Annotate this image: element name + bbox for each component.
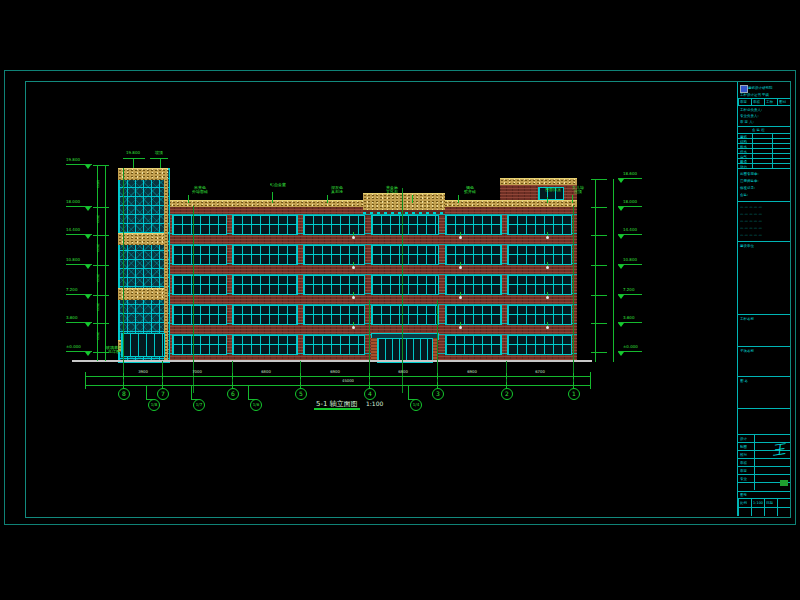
- right-chain-tick: [591, 295, 607, 296]
- titleblock-text: 电气: [740, 154, 747, 158]
- ac-unit-flag: [547, 292, 548, 296]
- axis-bubble: 2: [501, 388, 513, 400]
- window-r0-g4: [445, 215, 502, 235]
- ac-unit-dot: [546, 266, 549, 269]
- dim-tick: [232, 373, 233, 379]
- tower-flag-drop-2: [160, 158, 161, 168]
- titleblock-text: 图号: [740, 492, 747, 496]
- tower-flag-text-2: 坡顶: [149, 151, 168, 155]
- level-line: [618, 234, 642, 235]
- ac-unit-dot: [459, 266, 462, 269]
- floor-dim-text: 3600: [97, 244, 101, 252]
- level-triangle: [618, 179, 624, 183]
- axis-bubble: 6: [227, 388, 239, 400]
- roof-callout-label: 女儿墙 压顶: [562, 186, 594, 194]
- titleblock-text: 专业: [740, 476, 747, 480]
- left-chain-tick: [93, 207, 109, 208]
- tower-band-2: [118, 288, 168, 300]
- titleblock-text: 工程设计证书 甲级: [740, 92, 769, 96]
- level-triangle: [618, 323, 624, 327]
- ac-unit-dot: [352, 296, 355, 299]
- level-triangle: [85, 235, 91, 239]
- window-r0-g1: [232, 215, 298, 235]
- right-chain-tick: [591, 352, 607, 353]
- window-r3-g1: [232, 305, 298, 325]
- titleblock-text: 排水: [740, 149, 747, 153]
- titleblock-text: — — — — —: [740, 218, 762, 222]
- window-r0-g5: [507, 215, 572, 235]
- titleblock-text: 工程总负责人:: [740, 107, 762, 111]
- dim-segment-text: 6800: [259, 370, 274, 374]
- titleblock-divider: [738, 168, 790, 169]
- axis-bubble: 7: [157, 388, 169, 400]
- window-r1-g0: [172, 245, 227, 265]
- ac-unit-dot: [459, 236, 462, 239]
- ground-line: [72, 360, 592, 362]
- window-r2-g5: [507, 275, 572, 295]
- dim-segment-text: 6900: [327, 370, 342, 374]
- floor-dim-text: 3600: [97, 332, 101, 340]
- level-text: 7.200: [623, 288, 634, 292]
- window-r3-g5: [507, 305, 572, 325]
- titleblock-text: 图 名: [740, 378, 748, 382]
- ac-unit-flag: [460, 322, 461, 326]
- elevation-drawing: 8765432139007000680069006800690067004500…: [0, 0, 800, 600]
- header-cell-line: [764, 98, 765, 105]
- axis-bubble: 3: [432, 388, 444, 400]
- sub-axis-bubble: 1/7: [193, 399, 205, 411]
- window-r0-g0: [172, 215, 227, 235]
- floor-dim-text: 3600: [97, 303, 101, 311]
- level-line: [618, 206, 642, 207]
- level-text: 14.400: [623, 228, 637, 232]
- roof-callout-label: 深灰色 真石漆: [321, 186, 353, 194]
- left-chain-tick: [93, 265, 109, 266]
- ac-unit-flag: [547, 232, 548, 236]
- right-chain-tick: [591, 179, 607, 180]
- dim-end-r: [590, 372, 591, 389]
- ac-unit-flag: [353, 262, 354, 266]
- dim-line-1: [85, 376, 590, 377]
- titleblock-text: 暖通: [740, 159, 747, 163]
- window-r4-g1: [232, 335, 298, 355]
- titleblock-text: 设计: [740, 436, 747, 440]
- level-text: 3.600: [623, 316, 634, 320]
- ac-unit-flag: [460, 262, 461, 266]
- dim-tick: [300, 373, 301, 379]
- dim-segment-text: 3900: [135, 370, 150, 374]
- drawing-scale-text: 1:100: [366, 400, 383, 407]
- window-r2-g1: [232, 275, 298, 295]
- titleblock-text: 王: [772, 446, 786, 454]
- dim-segment-text: 6700: [532, 370, 547, 374]
- dim-segment-text: 6800: [396, 370, 411, 374]
- level-text: 7.200: [66, 288, 77, 292]
- level-triangle: [85, 265, 91, 269]
- titleblock-text: 比例: [740, 500, 747, 504]
- window-r1-g1: [232, 245, 298, 265]
- tower-flag-drop-1: [133, 158, 134, 168]
- sub-axis-leader-v: [191, 386, 192, 400]
- level-text: ±0.000: [623, 345, 638, 349]
- window-r2-g3: [371, 275, 439, 295]
- dim-tick: [369, 373, 370, 379]
- window-r3-g3: [371, 305, 439, 325]
- level-text: 18.600: [623, 172, 637, 176]
- ac-unit-flag: [353, 292, 354, 296]
- sub-axis-leader-v: [146, 386, 147, 400]
- titleblock-text: — — — — —: [740, 204, 762, 208]
- window-r3-g4: [445, 305, 502, 325]
- roof-callout-leader: [188, 195, 189, 203]
- ac-unit-flag: [353, 322, 354, 326]
- grid-centerline: [123, 168, 124, 393]
- titleblock-text: 专业负责人:: [740, 113, 759, 117]
- roof-callout-leader: [547, 197, 548, 203]
- level-text: ±0.000: [66, 345, 81, 349]
- dim-total-text: 45000: [341, 379, 356, 383]
- window-r1-g4: [445, 245, 502, 265]
- left-chain-tick: [93, 165, 109, 166]
- dim-tick: [437, 373, 438, 379]
- level-line: [618, 351, 642, 352]
- dim-end-l: [85, 372, 86, 389]
- grid-centerline: [193, 206, 194, 393]
- header-cell-line: [777, 98, 778, 105]
- drawing-title-text: 5-1 轴立面图: [316, 400, 358, 408]
- titleblock-divider: [738, 376, 790, 377]
- left-chain-tick: [93, 295, 109, 296]
- sub-axis-bubble: 1/6: [250, 399, 262, 411]
- window-r4-g5: [507, 335, 572, 355]
- titleblock-divider: [738, 105, 790, 106]
- window-r2-g4: [445, 275, 502, 295]
- ac-unit-flag: [353, 232, 354, 236]
- roof-callout-leader: [458, 195, 459, 203]
- titleblock-text: 出图专用章:: [740, 171, 759, 175]
- window-r4-g2: [303, 335, 365, 355]
- sign-table-col: [772, 133, 773, 168]
- titleblock-text: 审定: [740, 468, 747, 472]
- titleblock-divider: [738, 434, 790, 435]
- level-triangle: [618, 207, 624, 211]
- level-line: [618, 264, 642, 265]
- titleblock-text: 给水: [740, 144, 747, 148]
- window-r2-g0: [172, 275, 227, 295]
- dim-segment-text: 7000: [190, 370, 205, 374]
- floor-dim-text: 1800: [97, 180, 101, 188]
- tower-band-1: [118, 233, 168, 245]
- titleblock-divider: [738, 314, 790, 315]
- ac-unit-dot: [546, 326, 549, 329]
- sub-axis-leader-v: [248, 386, 249, 400]
- axis-bubble: 1: [568, 388, 580, 400]
- roof-callout-label: 褐色 劈开砖: [454, 186, 486, 194]
- roof-callout-leader: [327, 195, 328, 203]
- titleblock-text: — — — — —: [740, 232, 762, 236]
- window-r0-g3: [371, 215, 439, 235]
- titleblock-text: 建筑设计研究院: [748, 85, 773, 89]
- approval-stamp: [780, 480, 788, 486]
- ac-unit-dot: [459, 296, 462, 299]
- grid-centerline: [573, 206, 574, 393]
- ac-unit-flag: [460, 292, 461, 296]
- sign-table-col: [752, 133, 753, 168]
- person-col: [754, 434, 755, 490]
- titleblock-divider: [738, 466, 790, 467]
- dim-tick: [573, 373, 574, 379]
- axis-bubble: 4: [364, 388, 376, 400]
- titleblock-text: 会 签 栏: [752, 127, 765, 131]
- titleblock-text: 审 定 人:: [740, 119, 754, 123]
- level-text: 3.600: [66, 316, 77, 320]
- level-triangle: [618, 235, 624, 239]
- floor-dim-text: 3600: [97, 215, 101, 223]
- window-r2-g2: [303, 275, 365, 295]
- sub-axis-leader-v: [408, 386, 409, 400]
- level-triangle: [618, 265, 624, 269]
- titleblock-divider: [738, 201, 790, 202]
- tower-flag-text-1: 19.800: [123, 151, 144, 155]
- titleblock-text: 审定: [740, 99, 747, 103]
- titleblock-divider: [738, 408, 790, 409]
- window-r1-g2: [303, 245, 365, 265]
- window-r3-g2: [303, 305, 365, 325]
- level-text: 10.800: [66, 258, 80, 262]
- floor-dim-text: 3600: [97, 274, 101, 282]
- tower-band-0: [118, 168, 168, 180]
- titleblock-divider: [738, 346, 790, 347]
- titleblock-text: 结构: [740, 139, 747, 143]
- titleblock-text: 子项名称: [740, 348, 754, 352]
- titleblock-text: 修改记录:: [740, 185, 755, 189]
- right-chain-b: [613, 179, 614, 362]
- ac-unit-dot: [459, 326, 462, 329]
- titleblock-divider: [738, 241, 790, 242]
- roof-callout-leader: [272, 192, 273, 203]
- window-r0-g2: [303, 215, 365, 235]
- titleblock-text: 审核: [753, 99, 760, 103]
- level-triangle: [618, 352, 624, 356]
- header-cell-line: [738, 98, 739, 105]
- window-r1-g3: [371, 245, 439, 265]
- window-r1-g5: [507, 245, 572, 265]
- titleblock-text: 建筑: [740, 134, 747, 138]
- ac-unit-dot: [546, 236, 549, 239]
- ac-unit-dot: [352, 326, 355, 329]
- right-chain-tick: [591, 265, 607, 266]
- titleblock-text: 1:100: [753, 500, 763, 504]
- ac-unit-flag: [547, 322, 548, 326]
- window-r4-g0: [172, 335, 227, 355]
- axis-bubble: 8: [118, 388, 130, 400]
- left-chain-b: [105, 165, 106, 361]
- ac-unit-dot: [546, 296, 549, 299]
- ac-unit-flag: [547, 262, 548, 266]
- titleblock-text: 图别: [779, 99, 786, 103]
- titleblock-text: 会签:: [740, 192, 748, 196]
- ac-unit-dot: [352, 236, 355, 239]
- level-triangle: [85, 295, 91, 299]
- level-text: 10.800: [623, 258, 637, 262]
- right-chain-tick: [591, 207, 607, 208]
- header-cell-line: [751, 98, 752, 105]
- level-line: [618, 178, 642, 179]
- left-chain-tick: [93, 235, 109, 236]
- title-block: 建筑设计研究院工程设计证书 甲级审定审核工种图别工程总负责人:专业负责人:审 定…: [737, 82, 790, 516]
- titleblock-text: 制图: [740, 444, 747, 448]
- level-text: 14.400: [66, 228, 80, 232]
- titleblock-text: 日期: [766, 500, 773, 504]
- tower-flag-line-1: [123, 158, 145, 159]
- level-triangle: [85, 352, 91, 356]
- dim-line-2: [85, 385, 590, 386]
- left-chain-tick: [93, 323, 109, 324]
- ac-unit-dot: [352, 266, 355, 269]
- right-chain-tick: [591, 235, 607, 236]
- center-parapet: [363, 193, 445, 211]
- level-triangle: [618, 295, 624, 299]
- titleblock-text: 建设单位: [740, 243, 754, 247]
- axis-bubble: 5: [295, 388, 307, 400]
- titleblock-text: 审核: [740, 460, 747, 464]
- level-triangle: [85, 165, 91, 169]
- level-text: 18.000: [66, 200, 80, 204]
- level-line: [618, 322, 642, 323]
- titleblock-text: 校对: [740, 452, 747, 456]
- level-text: 18.000: [623, 200, 637, 204]
- level-triangle: [85, 323, 91, 327]
- sub-axis-bubble: 1/8: [148, 399, 160, 411]
- roof-callout-leader: [572, 195, 573, 203]
- tower-flag-line-2: [150, 158, 168, 159]
- dim-tick: [162, 373, 163, 379]
- dim-segment-text: 6900: [464, 370, 479, 374]
- titleblock-text: — — — — —: [740, 225, 762, 229]
- titleblock-text: 工程名称: [740, 316, 754, 320]
- titleblock-divider: [738, 474, 790, 475]
- titleblock-divider: [738, 458, 790, 459]
- roof-callout-leader: [412, 195, 413, 203]
- roof-callout-label: 黄金麻 文化石: [376, 186, 408, 194]
- ac-unit-flag: [460, 232, 461, 236]
- level-line: [618, 294, 642, 295]
- titleblock-text: 注册师签章:: [740, 178, 759, 182]
- curtain-wall-label: 玻璃幕墙 见详图: [100, 346, 129, 354]
- roof-callout-label: 米黄色 外墙面砖: [184, 186, 216, 194]
- window-r4-g4: [445, 335, 502, 355]
- window-r3-g0: [172, 305, 227, 325]
- grid-centerline: [402, 188, 403, 393]
- dim-tick: [506, 373, 507, 379]
- sub-axis-bubble: 1/4: [410, 399, 422, 411]
- level-triangle: [85, 207, 91, 211]
- bottom-row: [738, 507, 790, 508]
- cad-canvas: 8765432139007000680069006800690067004500…: [0, 0, 800, 600]
- titleblock-text: — — — — —: [740, 211, 762, 215]
- dim-tick: [123, 373, 124, 379]
- titleblock-text: 工种: [766, 99, 773, 103]
- level-text: 19.800: [66, 158, 80, 162]
- drawing-title-underline: [314, 408, 360, 410]
- right-chain-tick: [591, 323, 607, 324]
- roof-callout-label: 铝合金窗: [262, 183, 294, 187]
